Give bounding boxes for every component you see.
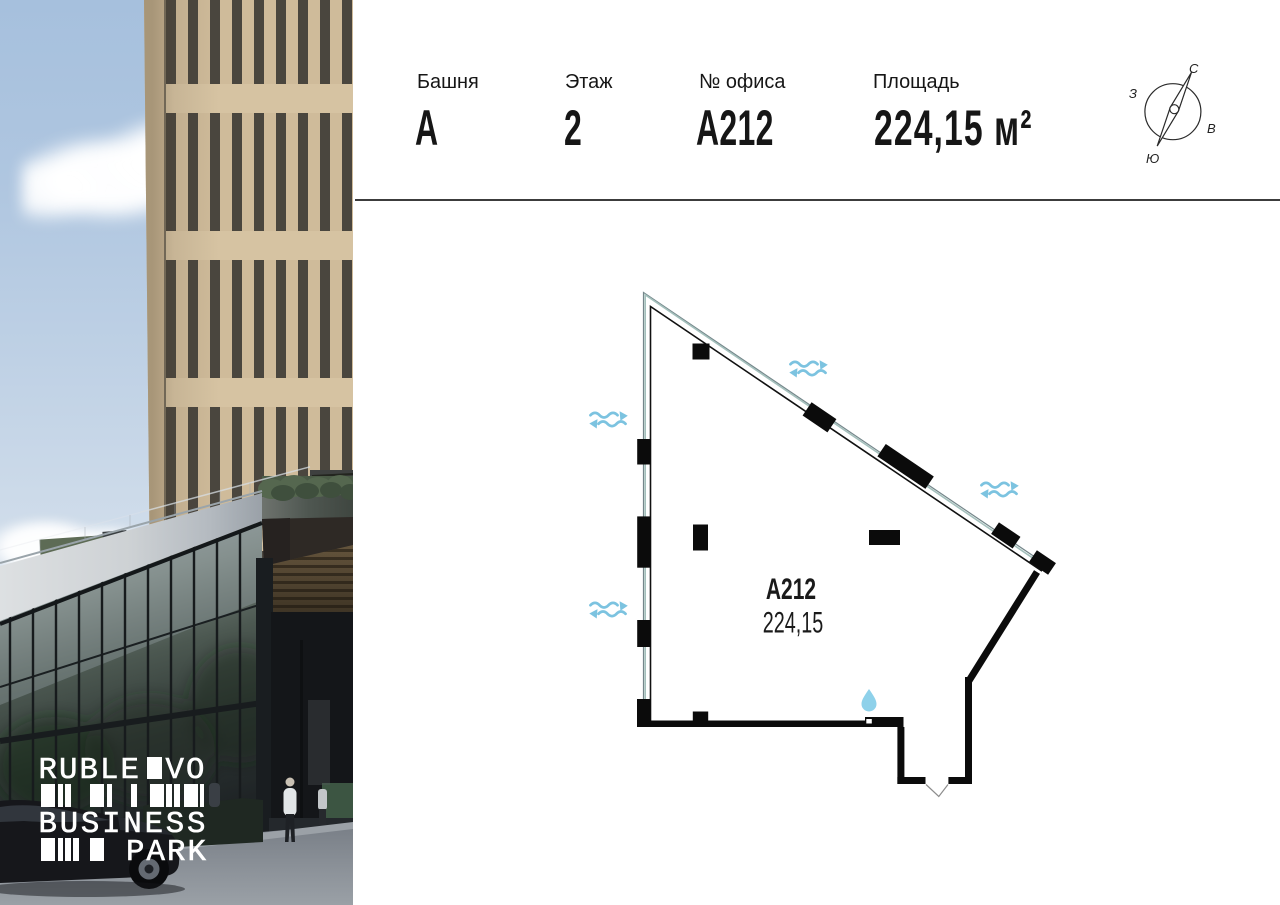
svg-text:З: З — [1129, 86, 1137, 101]
svg-text:А212: А212 — [766, 574, 816, 606]
svg-text:Ю: Ю — [1146, 151, 1159, 166]
svg-text:С: С — [1189, 61, 1199, 76]
svg-text:В: В — [1207, 121, 1216, 136]
svg-text:224,15: 224,15 — [763, 607, 824, 640]
